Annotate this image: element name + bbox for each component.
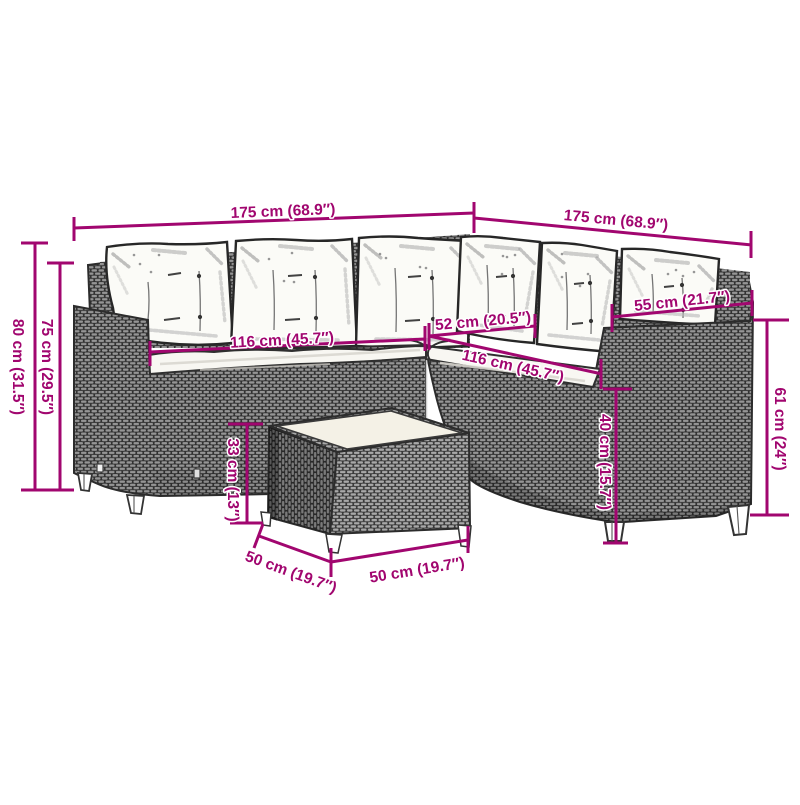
svg-text:75 cm (29.5″): 75 cm (29.5″) [38,319,55,415]
svg-text:33 cm (13″): 33 cm (13″) [224,438,241,521]
svg-text:80 cm (31.5″): 80 cm (31.5″) [9,319,26,415]
svg-text:50 cm (19.7″): 50 cm (19.7″) [368,554,466,586]
svg-text:175 cm (68.9″): 175 cm (68.9″) [563,207,669,234]
svg-text:50 cm (19.7″): 50 cm (19.7″) [243,548,339,597]
svg-text:61 cm (24″): 61 cm (24″) [771,387,788,470]
svg-text:40 cm (15.7″): 40 cm (15.7″) [596,414,613,510]
